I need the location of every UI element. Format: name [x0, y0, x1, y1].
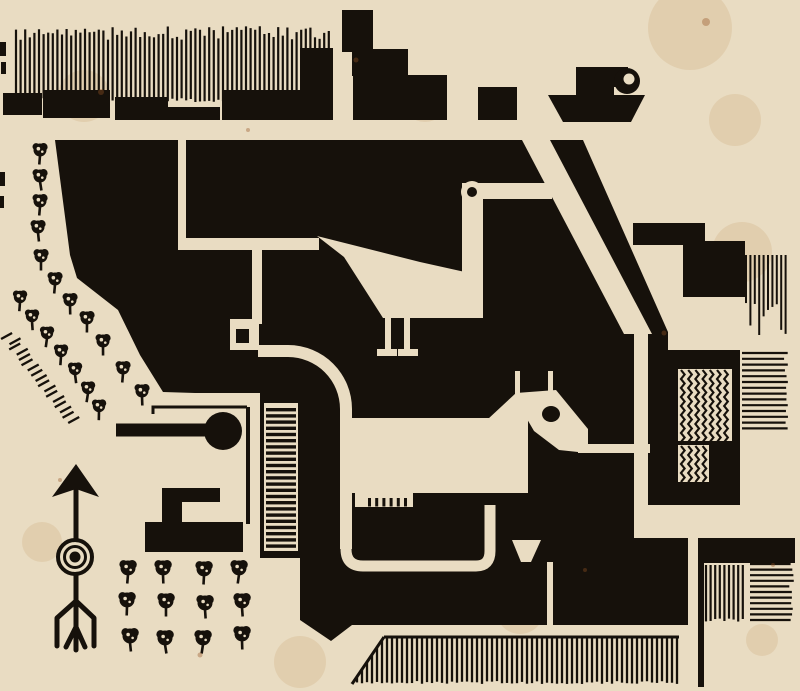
quay-block	[222, 90, 333, 120]
goose-leg	[404, 318, 410, 350]
quay-block	[478, 87, 517, 120]
boat-hull	[548, 95, 645, 122]
southeast-top-band	[698, 538, 795, 563]
goose-foot	[398, 349, 418, 356]
quay-block	[3, 93, 42, 115]
step-building	[162, 488, 220, 502]
horse-eye	[542, 406, 560, 422]
goose-foot	[377, 349, 397, 356]
street-lane-thin	[547, 562, 553, 628]
lollipop-circle	[204, 412, 242, 450]
quay-block	[353, 75, 447, 120]
quay-block	[115, 97, 168, 120]
street-vertical-2	[252, 250, 262, 324]
southeast-spine	[698, 563, 704, 687]
east-step-block	[683, 241, 745, 297]
crosswalk-rungs	[266, 408, 296, 548]
street-horizontal-3	[648, 505, 793, 538]
street-vertical-4	[634, 332, 648, 538]
courtyard-inner-square	[236, 329, 249, 343]
quay-block	[168, 107, 220, 120]
street-horizontal-1	[178, 238, 319, 250]
woodcut-print	[0, 0, 800, 691]
street-vertical-1	[178, 140, 186, 246]
horse-ear	[548, 371, 553, 393]
arrow-hub-dot	[70, 552, 81, 563]
north-arrow	[52, 464, 99, 650]
step-building	[145, 522, 243, 552]
boat-funnel-hole	[624, 74, 635, 85]
step-building	[162, 502, 182, 522]
boat-cabin	[576, 67, 614, 96]
horse-body	[345, 418, 528, 493]
quay-tower	[300, 48, 333, 93]
town-plan-map	[0, 0, 800, 691]
goose-eye	[467, 187, 477, 197]
quay-block	[352, 49, 408, 76]
horse-ear	[515, 371, 520, 396]
goose-neck	[462, 198, 483, 280]
quay-tower	[342, 10, 373, 52]
street-horizontal-2	[578, 444, 650, 453]
goose-leg	[385, 318, 391, 350]
